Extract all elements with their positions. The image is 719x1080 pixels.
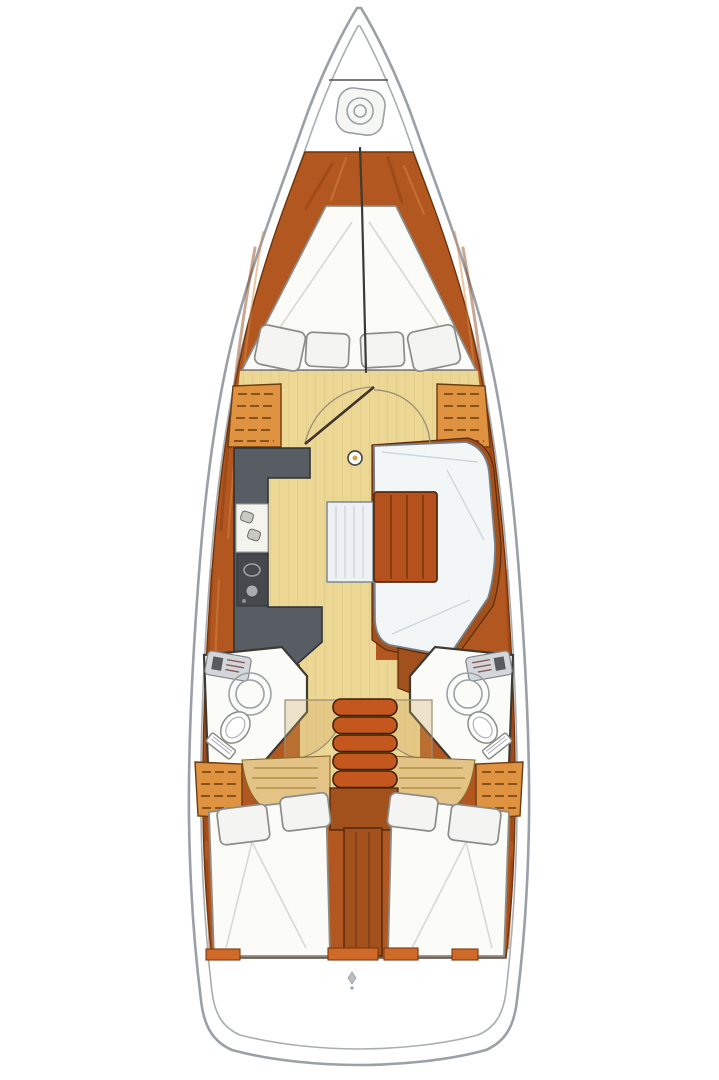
starboard-aft-berth [386, 792, 509, 956]
starboard-forward-locker [437, 384, 490, 447]
pillow [406, 323, 461, 372]
companionway-steps [333, 699, 397, 788]
galley-sink [236, 504, 268, 552]
salon-table [374, 492, 437, 582]
mast-post-icon [348, 451, 362, 465]
galley-stove [237, 554, 268, 606]
salon-bench-seat [327, 502, 373, 582]
port-aft-berth [209, 792, 332, 956]
pillow [253, 324, 306, 373]
port-forward-locker [228, 384, 281, 447]
yacht-floor-plan [0, 0, 719, 1080]
bow-hatch-icon [334, 86, 387, 137]
floor-plan-canvas [0, 0, 719, 1080]
pillow [305, 332, 350, 368]
